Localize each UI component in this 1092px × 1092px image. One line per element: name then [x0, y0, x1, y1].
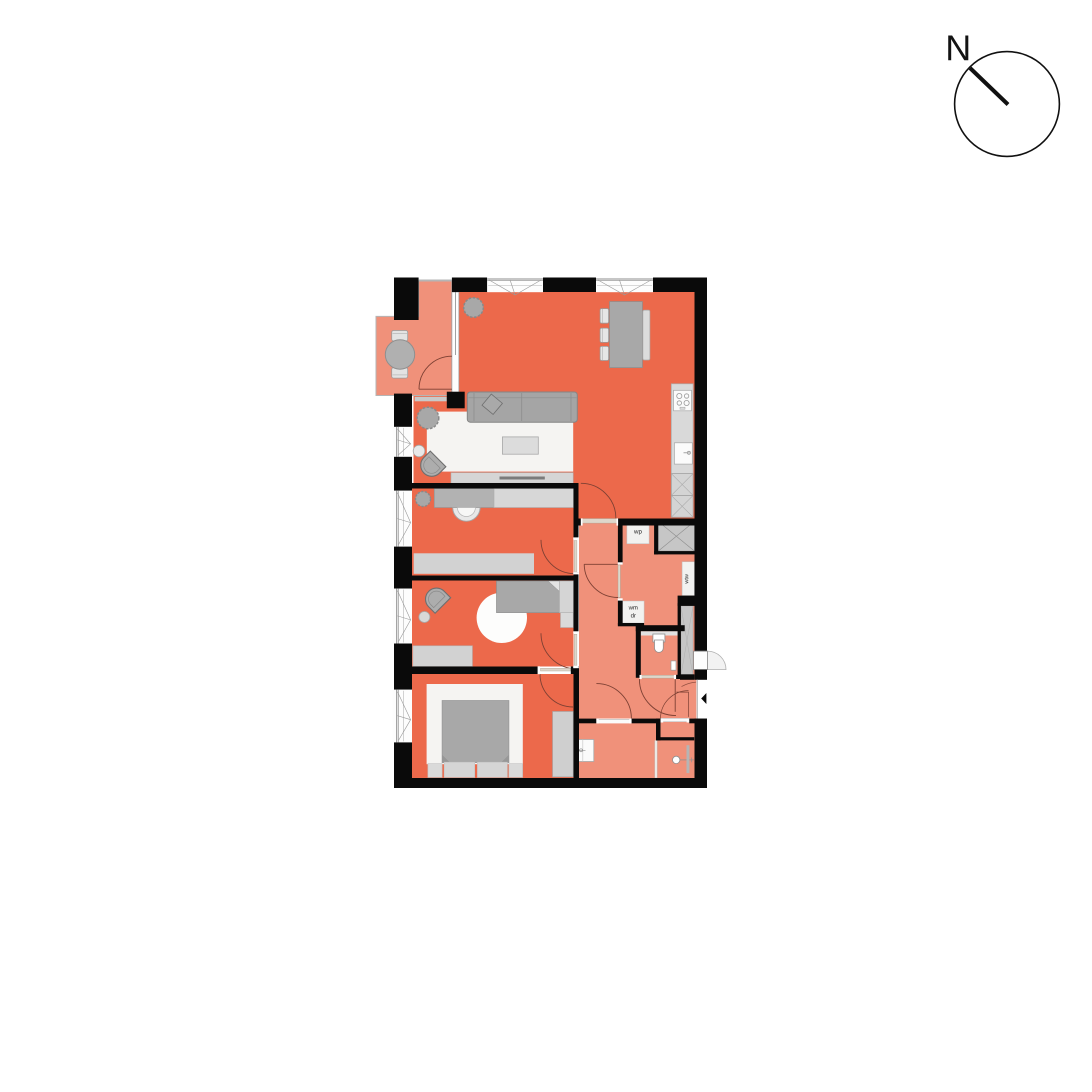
svg-text:N: N: [945, 27, 971, 68]
svg-text:wp: wp: [633, 529, 642, 536]
svg-text:wtw: wtw: [684, 574, 690, 585]
svg-text:wm: wm: [628, 606, 638, 612]
svg-text:dr: dr: [631, 614, 636, 620]
